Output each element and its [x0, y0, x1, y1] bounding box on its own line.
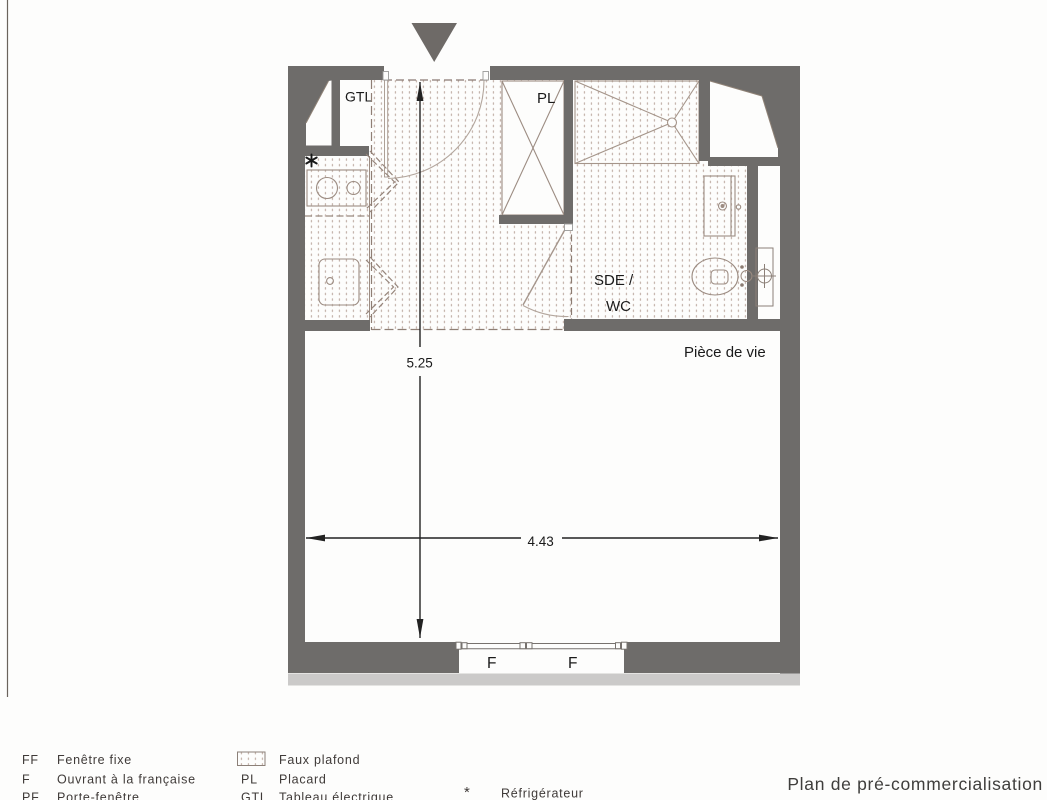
svg-text:4.43: 4.43 — [528, 534, 554, 549]
svg-text:FF: FF — [22, 753, 39, 767]
svg-text:Tableau électrique: Tableau électrique — [279, 791, 394, 800]
svg-text:GTL: GTL — [345, 89, 372, 105]
svg-text:F: F — [22, 773, 30, 787]
svg-text:Réfrigérateur: Réfrigérateur — [501, 787, 584, 800]
svg-text:Porte-fenêtre: Porte-fenêtre — [57, 791, 140, 800]
svg-text:PL: PL — [241, 773, 258, 787]
svg-text:F: F — [568, 655, 577, 672]
svg-text:Ouvrant à la française: Ouvrant à la française — [57, 773, 196, 787]
svg-text:GTL: GTL — [241, 791, 268, 800]
svg-text:PL: PL — [537, 90, 555, 107]
svg-text:5.25: 5.25 — [407, 356, 433, 371]
svg-text:F: F — [487, 655, 496, 672]
svg-text:SDE /: SDE / — [594, 272, 634, 289]
svg-text:Placard: Placard — [279, 773, 327, 787]
svg-text:Pièce de vie: Pièce de vie — [684, 344, 766, 361]
svg-text:Faux plafond: Faux plafond — [279, 753, 360, 767]
svg-text:*: * — [464, 784, 470, 800]
svg-text:WC: WC — [606, 298, 631, 315]
svg-text:PF: PF — [22, 791, 39, 800]
svg-text:Fenêtre fixe: Fenêtre fixe — [57, 753, 132, 767]
svg-text:Plan de pré-commercialisation: Plan de pré-commercialisation — [787, 774, 1043, 794]
